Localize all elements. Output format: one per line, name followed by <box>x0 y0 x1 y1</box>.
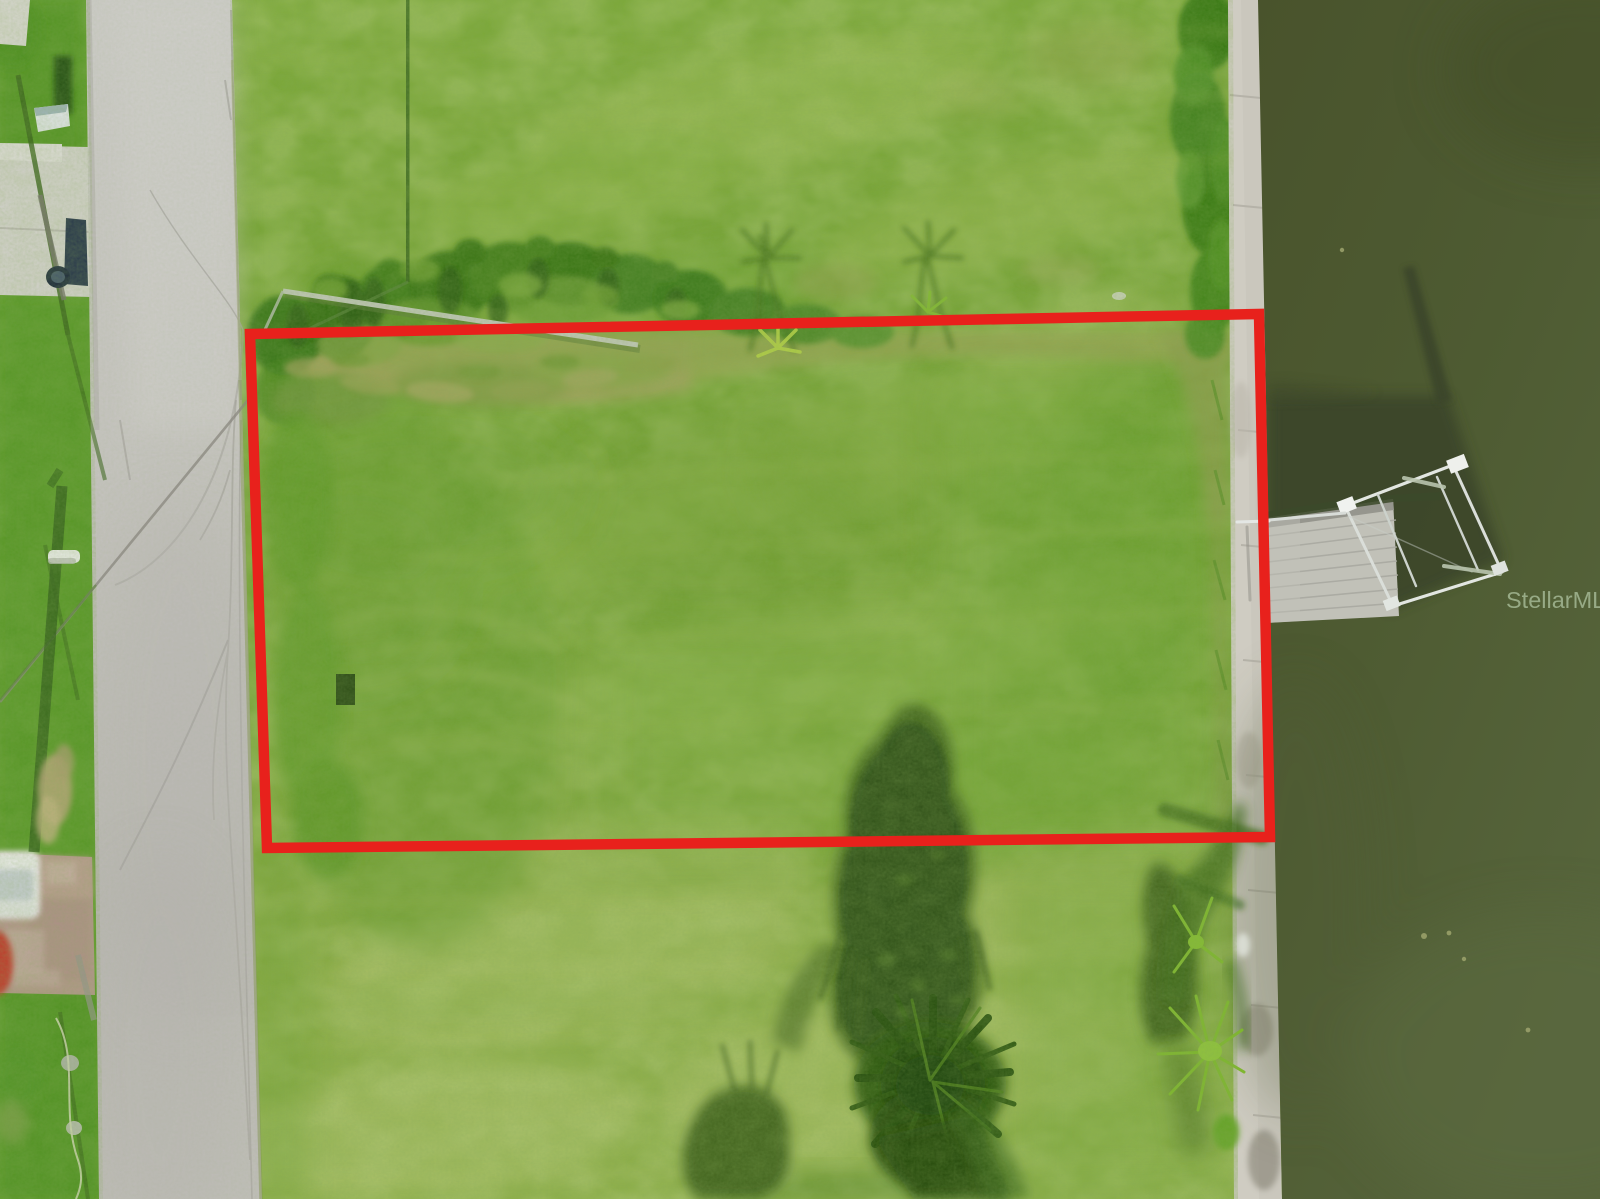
svg-text:StellarMLS: StellarMLS <box>1506 587 1600 613</box>
